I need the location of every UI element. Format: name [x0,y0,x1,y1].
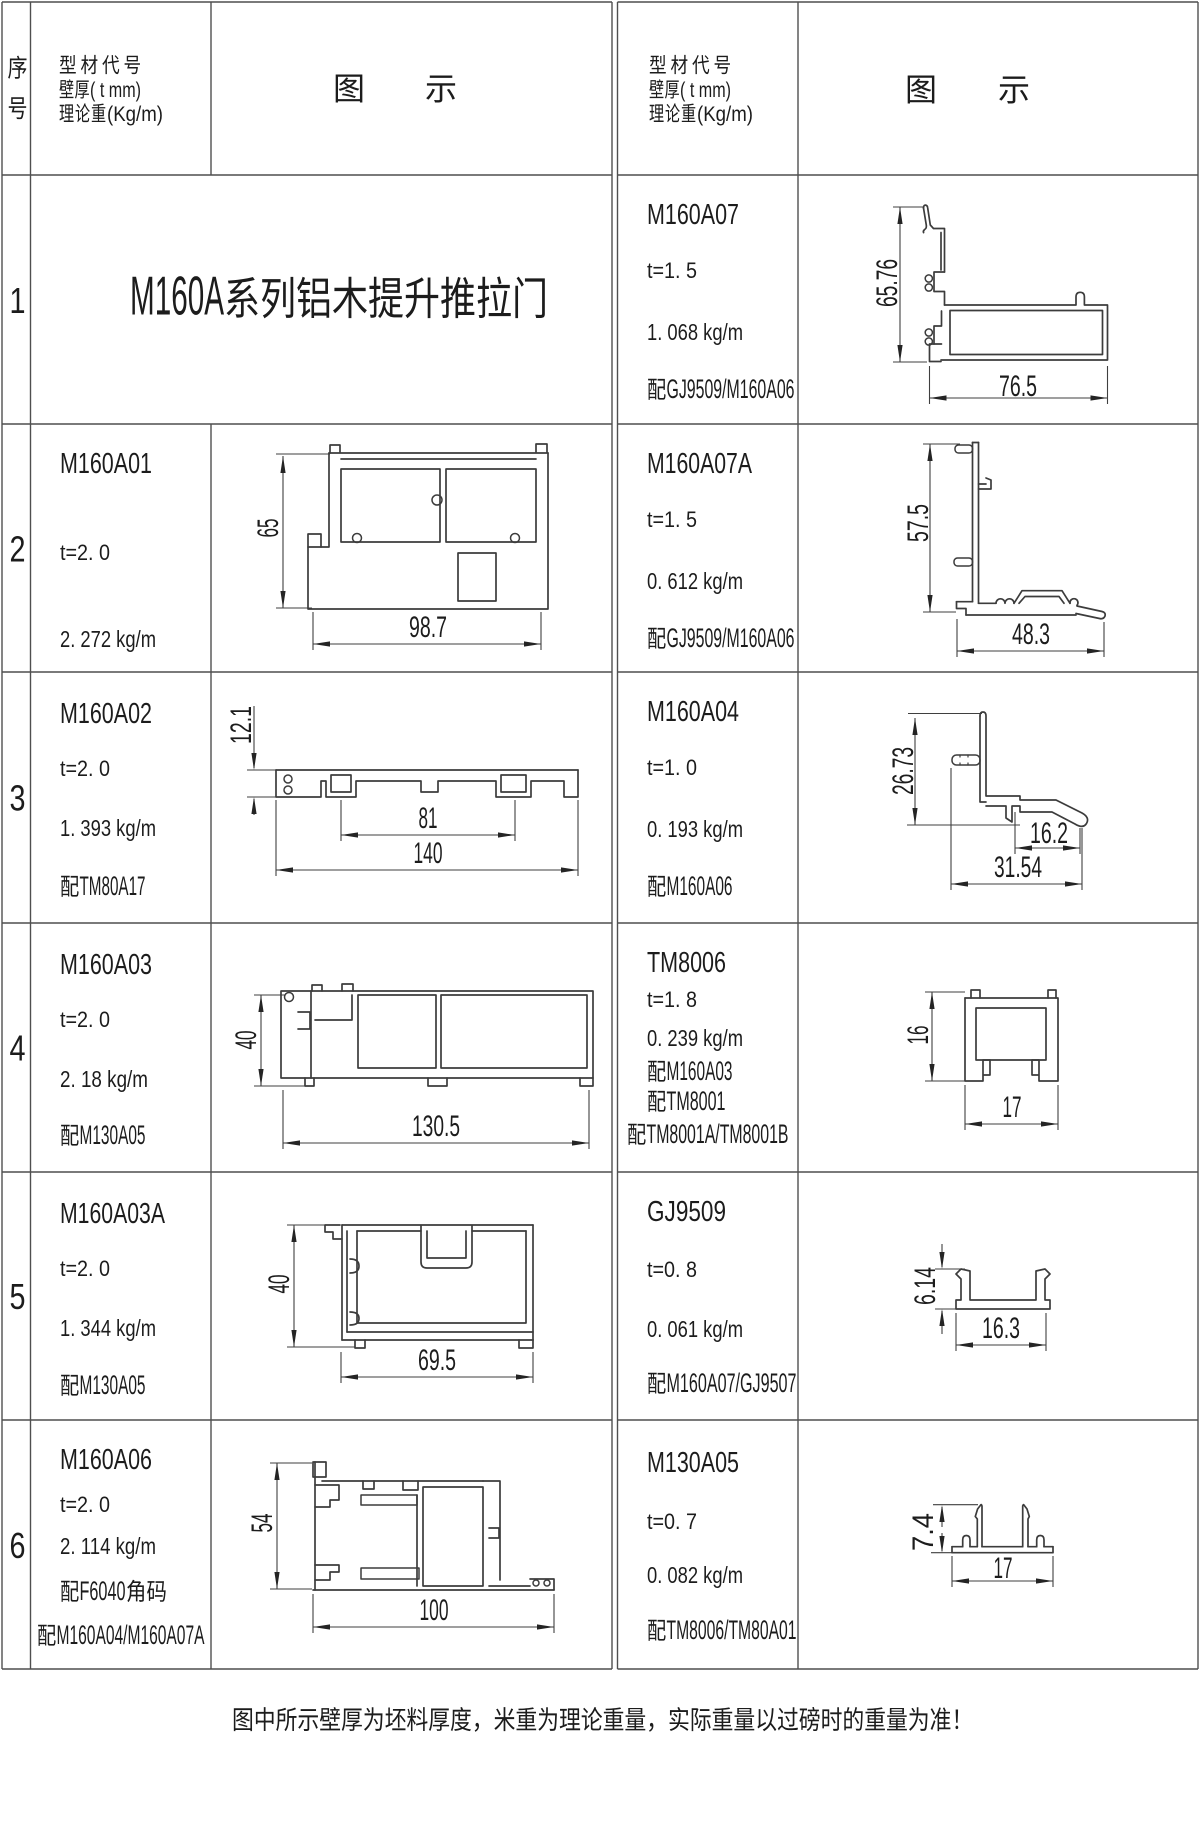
svg-text:130.5: 130.5 [412,1110,460,1143]
svg-text:M160A03: M160A03 [60,949,152,981]
svg-text:31.54: 31.54 [994,851,1042,884]
svg-text:65: 65 [252,519,285,538]
svg-text:M130A05: M130A05 [647,1447,739,1479]
svg-text:100: 100 [420,1594,449,1627]
svg-text:M130A05: M130A05 [80,1120,146,1150]
svg-text:TM8006/TM80A01: TM8006/TM80A01 [667,1615,797,1645]
svg-text:M160A07/GJ9507: M160A07/GJ9507 [667,1368,797,1398]
svg-text:1: 1 [10,280,26,321]
svg-text:54: 54 [246,1514,279,1533]
svg-text:140: 140 [414,837,443,870]
svg-text:16.2: 16.2 [1030,817,1068,850]
svg-text:M160A03A: M160A03A [60,1198,165,1230]
svg-text:2: 2 [10,529,26,570]
svg-text:6.14: 6.14 [909,1267,942,1305]
svg-text:12.1: 12.1 [225,706,258,744]
svg-text:( t mm): ( t mm) [90,79,141,102]
svg-text:t=0. 7: t=0. 7 [647,1509,697,1534]
svg-text:57.5: 57.5 [902,504,935,542]
svg-text:(Kg/m): (Kg/m) [107,103,163,126]
svg-text:M160A01: M160A01 [60,448,152,480]
svg-text:M160A04/M160A07A: M160A04/M160A07A [57,1620,205,1650]
svg-text:(Kg/m): (Kg/m) [697,103,753,126]
svg-text:t=1. 8: t=1. 8 [647,987,697,1012]
svg-text:M130A05: M130A05 [80,1370,146,1400]
svg-text:TM8006: TM8006 [647,947,726,979]
svg-text:17: 17 [994,1552,1013,1585]
svg-text:GJ9509: GJ9509 [647,1196,726,1228]
svg-text:0. 193 kg/m: 0. 193 kg/m [647,816,743,842]
svg-text:40: 40 [230,1031,263,1050]
svg-text:t=0. 8: t=0. 8 [647,1257,697,1282]
svg-text:M160A: M160A [130,265,224,327]
svg-text:2. 18 kg/m: 2. 18 kg/m [60,1066,148,1092]
svg-text:t=1. 5: t=1. 5 [647,258,697,283]
svg-text:6: 6 [10,1525,26,1566]
svg-text:M160A07: M160A07 [647,199,739,231]
svg-text:TM8001: TM8001 [667,1086,726,1116]
svg-text:5: 5 [10,1276,26,1317]
svg-text:t=2. 0: t=2. 0 [60,1492,110,1517]
svg-text:GJ9509/M160A06: GJ9509/M160A06 [667,623,795,653]
svg-text:t=1. 5: t=1. 5 [647,507,697,532]
svg-text:t=2. 0: t=2. 0 [60,756,110,781]
svg-text:1. 393 kg/m: 1. 393 kg/m [60,815,156,841]
svg-text:3: 3 [10,778,26,819]
svg-text:98.7: 98.7 [409,611,447,644]
svg-text:M160A04: M160A04 [647,696,739,728]
svg-text:65.76: 65.76 [871,259,904,307]
svg-text:76.5: 76.5 [999,370,1037,403]
svg-text:t=2. 0: t=2. 0 [60,1007,110,1032]
svg-text:t=1. 0: t=1. 0 [647,755,697,780]
svg-text:M160A03: M160A03 [667,1056,733,1086]
svg-text:TM8001A/TM8001B: TM8001A/TM8001B [647,1119,789,1149]
svg-text:17: 17 [1003,1091,1022,1124]
svg-text:16.3: 16.3 [982,1312,1020,1345]
svg-text:2. 114 kg/m: 2. 114 kg/m [60,1533,156,1559]
svg-text:M160A07A: M160A07A [647,448,752,480]
svg-text:0. 239 kg/m: 0. 239 kg/m [647,1025,743,1051]
svg-text:26.73: 26.73 [887,747,920,795]
svg-text:69.5: 69.5 [418,1344,456,1377]
svg-text:t=2. 0: t=2. 0 [60,1256,110,1281]
svg-text:4: 4 [10,1028,26,1069]
svg-text:t=2. 0: t=2. 0 [60,540,110,565]
svg-text:2. 272 kg/m: 2. 272 kg/m [60,626,156,652]
svg-text:( t mm): ( t mm) [680,79,731,102]
svg-text:0. 612 kg/m: 0. 612 kg/m [647,568,743,594]
svg-text:TM80A17: TM80A17 [80,871,146,901]
svg-text:M160A06: M160A06 [667,871,733,901]
svg-text:GJ9509/M160A06: GJ9509/M160A06 [667,374,795,404]
svg-text:1. 068 kg/m: 1. 068 kg/m [647,319,743,345]
svg-text:16: 16 [902,1026,935,1045]
svg-text:7.4: 7.4 [907,1513,940,1551]
svg-text:40: 40 [263,1275,296,1294]
svg-text:M160A02: M160A02 [60,698,152,730]
svg-text:0. 061 kg/m: 0. 061 kg/m [647,1316,743,1342]
svg-text:0. 082 kg/m: 0. 082 kg/m [647,1562,743,1588]
svg-text:1. 344 kg/m: 1. 344 kg/m [60,1315,156,1341]
svg-text:M160A06: M160A06 [60,1444,152,1476]
svg-text:48.3: 48.3 [1012,618,1050,651]
svg-text:81: 81 [419,802,438,835]
svg-text:F6040: F6040 [80,1576,126,1606]
